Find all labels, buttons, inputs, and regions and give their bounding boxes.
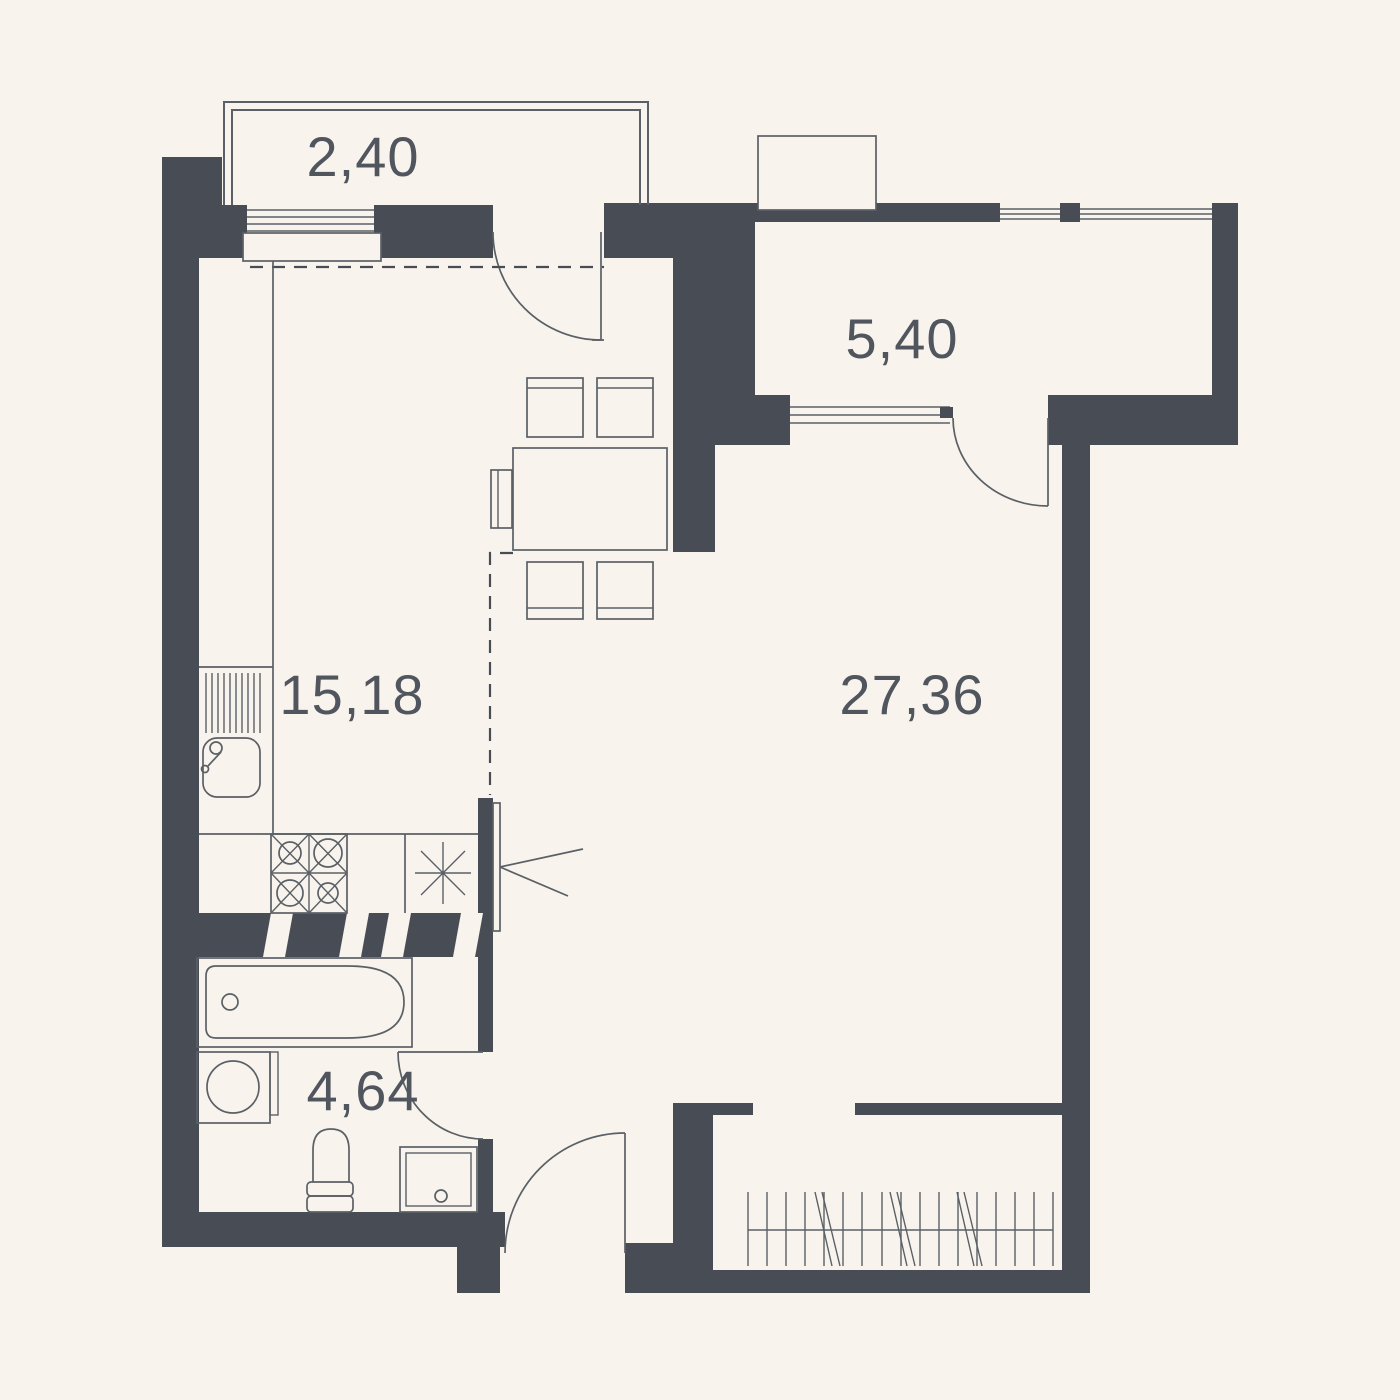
wall-left-exterior xyxy=(162,258,199,1247)
washbasin xyxy=(400,1147,477,1212)
dining-table xyxy=(513,448,667,550)
balcony-area-label: 2,40 xyxy=(307,125,420,188)
wall-entry-pier xyxy=(457,1247,500,1293)
wall-top-left-block xyxy=(162,157,222,258)
chair-left xyxy=(491,470,512,528)
kitchen-area-label: 15,18 xyxy=(279,663,424,726)
sink-drainer xyxy=(206,673,260,733)
washbasin-drain xyxy=(435,1190,447,1202)
ac-unit xyxy=(758,136,876,210)
wall-under-loggia-window xyxy=(755,395,790,445)
loggia-area-label: 5,40 xyxy=(846,307,959,370)
kitchen-door-leaf xyxy=(493,803,500,931)
wardrobe-hanging-rail xyxy=(748,1192,1053,1266)
wall-closet-arm-right xyxy=(855,1103,1063,1115)
kitchen-window-sill xyxy=(243,233,381,261)
loggia-window-pier xyxy=(1060,203,1080,222)
wall-bath-right-lower xyxy=(478,1139,493,1212)
wall-living-bottom xyxy=(713,1270,1090,1293)
chair xyxy=(527,378,583,437)
loggia-door xyxy=(953,418,1048,506)
balcony-door xyxy=(493,232,604,340)
wall-closet-left xyxy=(673,1103,713,1270)
chair xyxy=(597,378,653,437)
bathtub xyxy=(197,958,412,1047)
wall-kitchen-top-mid xyxy=(374,205,493,258)
wall-closet-arm-left xyxy=(713,1103,753,1115)
chair xyxy=(527,562,583,619)
balcony-railing xyxy=(224,102,648,205)
wall-loggia-bottom xyxy=(1048,395,1238,445)
washing-machine xyxy=(197,1052,278,1123)
toilet xyxy=(307,1129,353,1212)
kitchen-folding-door xyxy=(493,803,583,931)
bathroom-area-label: 4,64 xyxy=(307,1059,420,1122)
loggia-top-window xyxy=(1000,203,1212,222)
chair xyxy=(597,562,653,619)
floor-plan: 2,40 5,40 15,18 27,36 4,64 xyxy=(0,0,1400,1400)
dining-set xyxy=(491,378,667,619)
wardrobe-hangers xyxy=(815,1192,982,1266)
counter-edge xyxy=(199,261,478,834)
wall-bathroom-bottom xyxy=(162,1212,505,1247)
living-area-label: 27,36 xyxy=(839,663,984,726)
kitchen-window xyxy=(243,205,381,261)
living-loggia-window xyxy=(790,395,953,445)
kitchen-sink xyxy=(202,738,261,797)
wall-bath-right-upper xyxy=(478,957,493,1052)
bathtub-drain xyxy=(222,994,238,1010)
washing-machine-drum xyxy=(207,1061,259,1113)
wall-loggia-right xyxy=(1212,203,1238,395)
stove xyxy=(271,834,347,913)
entry-door xyxy=(505,1133,625,1253)
wall-living-right xyxy=(1062,445,1090,1293)
kitchen-fixtures xyxy=(199,261,478,913)
wall-central xyxy=(673,203,755,445)
wall-counter-end-stub xyxy=(478,798,493,913)
vent-shaft-hatched-wall xyxy=(199,913,493,957)
wall-dining-stub xyxy=(673,445,715,552)
fridge-marker-asterisk xyxy=(415,842,471,904)
toilet-tank xyxy=(307,1182,353,1196)
window-end-stub xyxy=(940,407,953,418)
